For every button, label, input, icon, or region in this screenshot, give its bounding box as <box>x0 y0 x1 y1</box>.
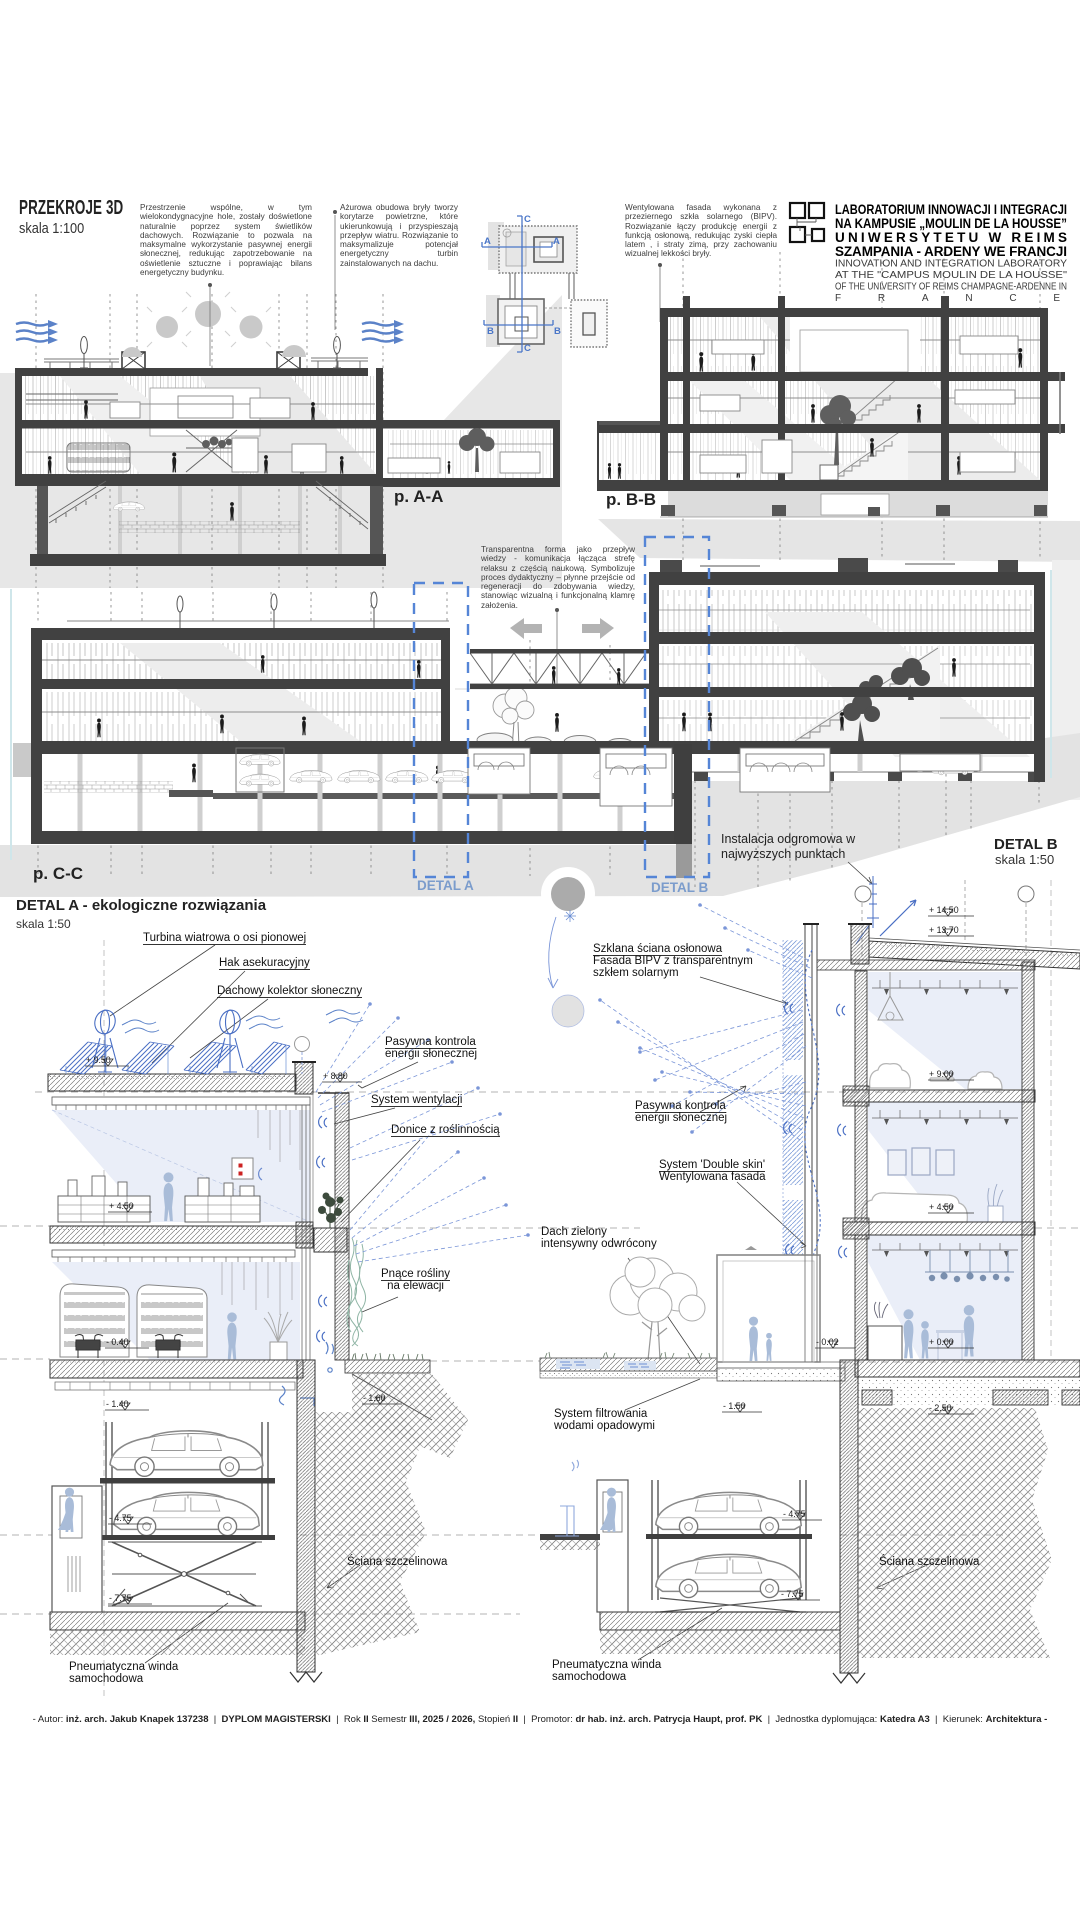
svg-text:+ 13.70: + 13.70 <box>929 925 959 935</box>
svg-text:B: B <box>554 326 561 337</box>
svg-text:+ 0.00: + 0.00 <box>929 1337 954 1347</box>
svg-text:- 1.40: - 1.40 <box>106 1399 129 1409</box>
svg-text:SZAMPANIA - ARDENY WE FRANCJI: SZAMPANIA - ARDENY WE FRANCJI <box>835 244 1067 259</box>
svg-text:UNIWERSYTETU W REIMS: UNIWERSYTETU W REIMS <box>835 230 1067 245</box>
svg-text:B: B <box>487 326 494 337</box>
svg-text:- 0.02: - 0.02 <box>816 1337 839 1347</box>
svg-text:- 4.75: - 4.75 <box>109 1513 132 1523</box>
svg-text:+ 9.00: + 9.00 <box>929 1069 954 1079</box>
svg-text:INNOVATION AND INTEGRATION LAB: INNOVATION AND INTEGRATION LABORATORY <box>835 259 1067 270</box>
svg-text:- 2.50: - 2.50 <box>929 1403 952 1413</box>
svg-text:- 1.50: - 1.50 <box>723 1401 746 1411</box>
svg-text:A: A <box>484 236 491 247</box>
svg-text:LABORATORIUM INNOWACJI I INTEG: LABORATORIUM INNOWACJI I INTEGRACJI <box>835 202 1067 217</box>
svg-text:- 7.75: - 7.75 <box>781 1589 804 1599</box>
svg-text:+ 4.50: + 4.50 <box>929 1202 954 1212</box>
svg-text:+ 14.50: + 14.50 <box>929 905 959 915</box>
svg-text:+ 4.50: + 4.50 <box>109 1201 134 1211</box>
svg-text:NA KAMPUSIE „MOULIN DE LA HOUS: NA KAMPUSIE „MOULIN DE LA HOUSSE” <box>835 216 1067 231</box>
svg-text:- 7.75: - 7.75 <box>109 1593 132 1603</box>
svg-text:OF THE UNIVERSITY OF REIMS CHA: OF THE UNIVERSITY OF REIMS CHAMPAGNE-ARD… <box>835 282 1067 293</box>
svg-text:C: C <box>524 214 531 225</box>
svg-text:+ 8.80: + 8.80 <box>323 1071 348 1081</box>
svg-text:AT THE "CAMPUS MOULIN DE LA HO: AT THE "CAMPUS MOULIN DE LA HOUSSE" <box>835 270 1068 281</box>
svg-text:+ 9.50: + 9.50 <box>86 1055 111 1065</box>
svg-text:- 0.40: - 0.40 <box>106 1337 129 1347</box>
svg-text:- 4.75: - 4.75 <box>783 1509 806 1519</box>
svg-text:A: A <box>553 236 560 247</box>
svg-text:C: C <box>524 343 531 354</box>
svg-text:- 1.60: - 1.60 <box>363 1393 386 1403</box>
